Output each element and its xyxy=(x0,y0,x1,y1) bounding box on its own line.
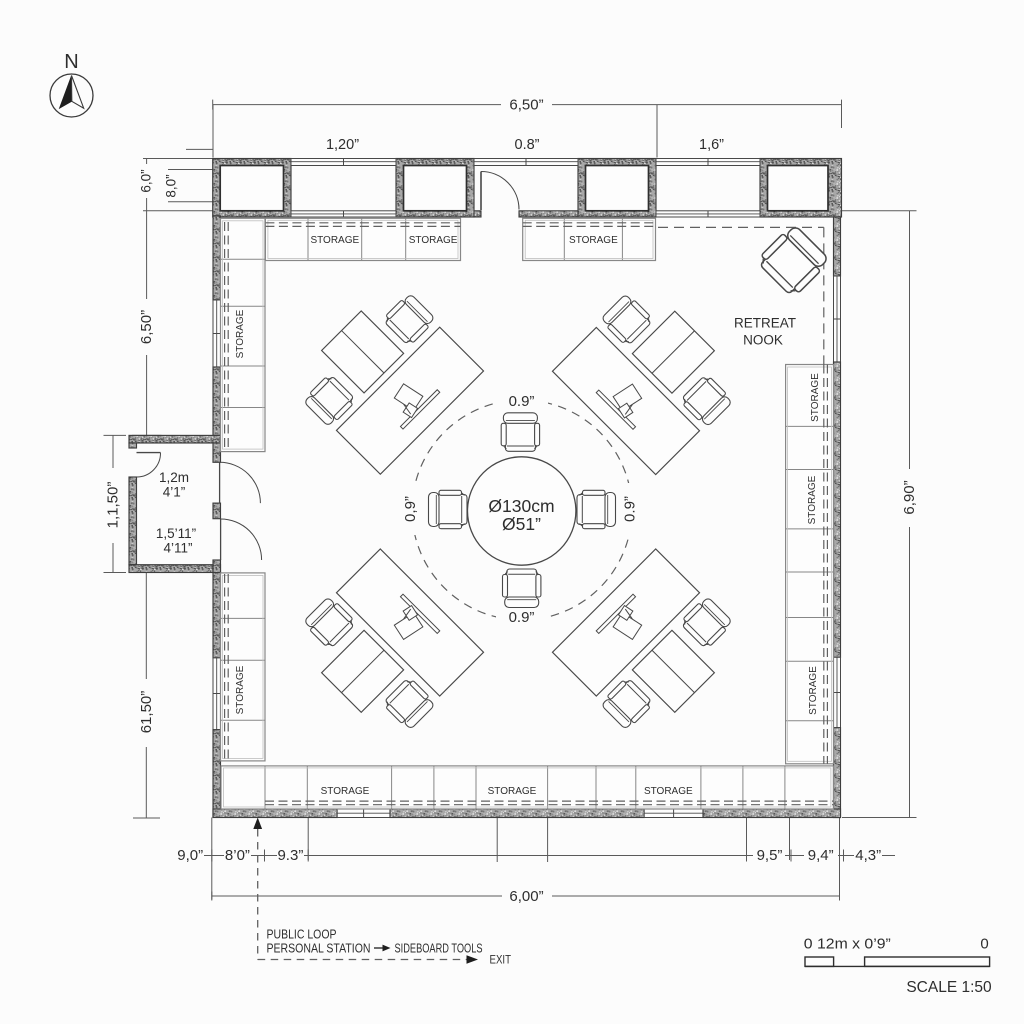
svg-text:STORAGE: STORAGE xyxy=(235,309,246,358)
svg-text:STORAGE: STORAGE xyxy=(488,786,537,797)
svg-text:STORAGE: STORAGE xyxy=(310,235,359,246)
svg-text:0.9”: 0.9” xyxy=(622,496,639,522)
svg-text:STORAGE: STORAGE xyxy=(644,786,693,797)
svg-text:STORAGE: STORAGE xyxy=(409,235,458,246)
svg-text:4’11”: 4’11” xyxy=(163,540,192,555)
svg-text:STORAGE: STORAGE xyxy=(235,665,246,714)
svg-text:0.9”: 0.9” xyxy=(509,393,535,410)
svg-text:STORAGE: STORAGE xyxy=(321,786,370,797)
svg-text:0.9”: 0.9” xyxy=(509,609,535,626)
svg-text:8’0”: 8’0” xyxy=(225,847,250,864)
svg-text:6,90”: 6,90” xyxy=(901,480,918,514)
svg-text:STORAGE: STORAGE xyxy=(807,475,818,524)
svg-text:EXIT: EXIT xyxy=(490,953,512,967)
svg-text:1,2m: 1,2m xyxy=(159,470,189,485)
svg-text:N: N xyxy=(64,51,78,73)
svg-text:0,9”: 0,9” xyxy=(402,496,419,522)
svg-text:1,20”: 1,20” xyxy=(326,137,359,153)
svg-text:9.3”: 9.3” xyxy=(277,847,303,864)
svg-text:6,0”: 6,0” xyxy=(139,169,154,192)
svg-text:61,50”: 61,50” xyxy=(138,691,155,734)
svg-text:9,0”: 9,0” xyxy=(177,847,203,864)
svg-text:1,6”: 1,6” xyxy=(699,137,724,153)
svg-text:Ø51”: Ø51” xyxy=(502,514,541,534)
svg-text:SCALE 1:50: SCALE 1:50 xyxy=(906,979,992,996)
svg-text:4’1”: 4’1” xyxy=(163,485,186,500)
svg-text:1,5’11”: 1,5’11” xyxy=(156,526,196,541)
svg-text:RETREAT: RETREAT xyxy=(734,316,796,331)
svg-text:1,1,50”: 1,1,50” xyxy=(105,482,122,529)
svg-text:6,50”: 6,50” xyxy=(509,96,543,113)
svg-text:4,3”: 4,3” xyxy=(855,847,881,864)
svg-text:PUBLIC LOOP: PUBLIC LOOP xyxy=(267,926,337,941)
svg-text:0: 0 xyxy=(980,936,988,953)
svg-text:0.8”: 0.8” xyxy=(515,137,540,153)
svg-text:STORAGE: STORAGE xyxy=(808,666,819,715)
svg-text:6,50”: 6,50” xyxy=(138,310,155,344)
svg-text:PERSONAL STATION: PERSONAL STATION xyxy=(267,941,371,956)
svg-text:STORAGE: STORAGE xyxy=(810,373,821,422)
svg-text:0 12m x 0’9”: 0 12m x 0’9” xyxy=(804,936,891,953)
svg-text:8,0”: 8,0” xyxy=(164,174,179,197)
svg-text:Ø130cm: Ø130cm xyxy=(488,496,554,516)
svg-text:9,5”: 9,5” xyxy=(757,847,783,864)
svg-text:6,00”: 6,00” xyxy=(509,888,543,905)
svg-text:NOOK: NOOK xyxy=(743,333,783,348)
svg-text:STORAGE: STORAGE xyxy=(569,235,618,246)
svg-text:9,4”: 9,4” xyxy=(808,847,834,864)
svg-text:SIDEBOARD TOOLS: SIDEBOARD TOOLS xyxy=(395,941,483,956)
